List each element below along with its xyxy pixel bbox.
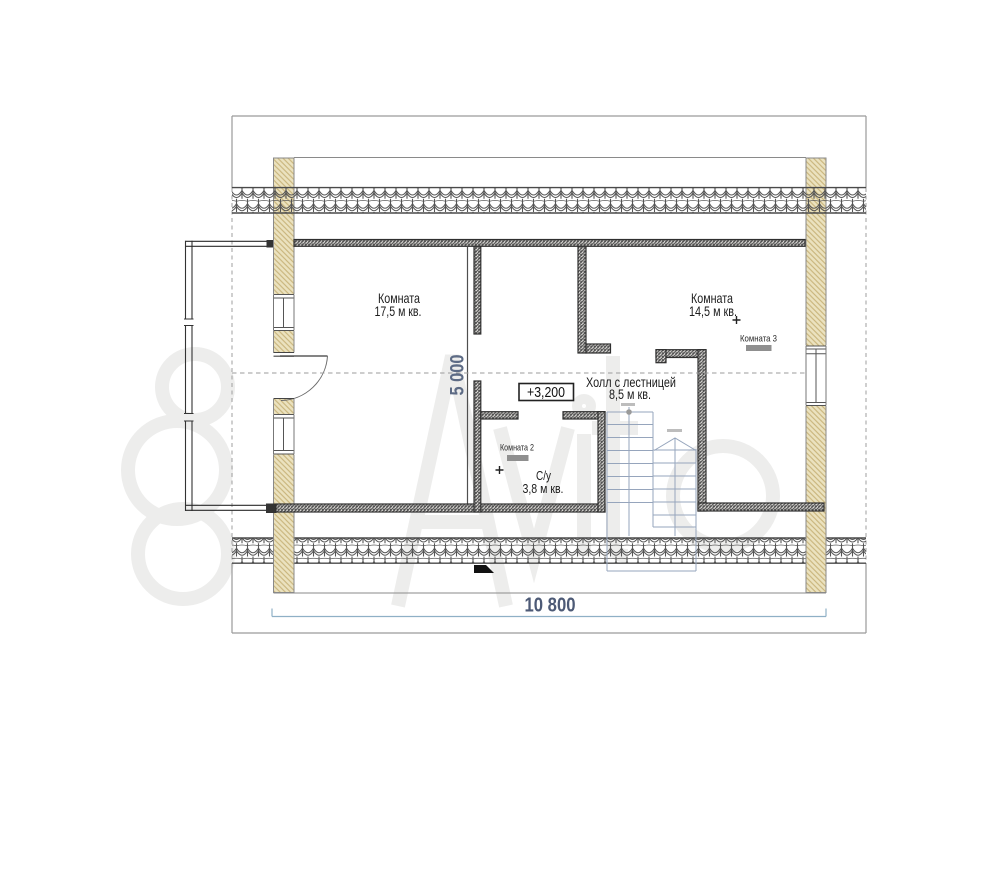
svg-text:+3,200: +3,200	[527, 385, 565, 401]
svg-text:10 800: 10 800	[525, 595, 576, 617]
svg-text:17,5 м кв.: 17,5 м кв.	[375, 303, 422, 319]
svg-text:Комната 3: Комната 3	[740, 334, 777, 345]
svg-text:Комната 2: Комната 2	[500, 443, 534, 454]
svg-text:8,5 м кв.: 8,5 м кв.	[609, 386, 651, 402]
svg-text:3,8 м кв.: 3,8 м кв.	[523, 481, 564, 496]
svg-text:5 000: 5 000	[448, 355, 469, 396]
svg-text:14,5 м кв.: 14,5 м кв.	[689, 303, 737, 319]
